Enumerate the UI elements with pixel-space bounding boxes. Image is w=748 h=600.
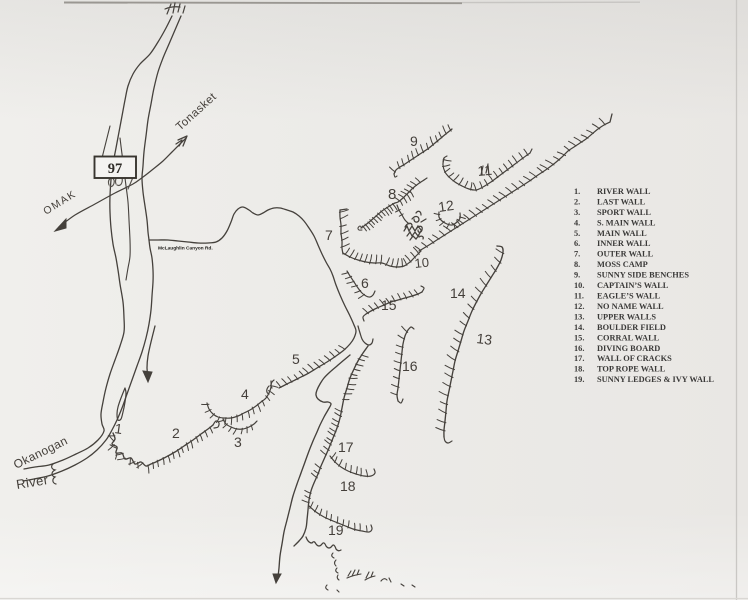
svg-text:9.: 9. bbox=[574, 271, 580, 280]
svg-text:19.: 19. bbox=[574, 375, 584, 384]
svg-text:SUNNY LEDGES & IVY WALL: SUNNY LEDGES & IVY WALL bbox=[597, 375, 714, 384]
svg-text:12: 12 bbox=[437, 197, 455, 215]
svg-text:17.: 17. bbox=[574, 354, 584, 363]
svg-text:BOULDER FIELD: BOULDER FIELD bbox=[597, 323, 666, 332]
svg-text:11: 11 bbox=[477, 162, 493, 179]
svg-text:3.: 3. bbox=[574, 208, 580, 217]
svg-text:5: 5 bbox=[292, 351, 300, 367]
svg-text:CAPTAIN’S WALL: CAPTAIN’S WALL bbox=[597, 281, 669, 290]
svg-text:3: 3 bbox=[234, 434, 242, 450]
svg-text:DIVING BOARD: DIVING BOARD bbox=[597, 344, 660, 353]
svg-text:1.: 1. bbox=[574, 187, 580, 196]
svg-text:15: 15 bbox=[381, 297, 397, 313]
svg-text:8: 8 bbox=[388, 186, 396, 203]
svg-text:4.: 4. bbox=[574, 218, 580, 227]
svg-text:MAIN WALL: MAIN WALL bbox=[597, 229, 647, 238]
svg-text:13: 13 bbox=[476, 330, 494, 348]
svg-text:14: 14 bbox=[450, 285, 466, 301]
svg-text:RIVER WALL: RIVER WALL bbox=[597, 187, 651, 196]
svg-text:14.: 14. bbox=[574, 323, 584, 332]
svg-text:17: 17 bbox=[338, 439, 354, 455]
svg-text:OUTER WALL: OUTER WALL bbox=[597, 250, 654, 259]
svg-text:16: 16 bbox=[402, 358, 418, 374]
svg-text:7: 7 bbox=[325, 227, 333, 243]
svg-text:11.: 11. bbox=[574, 292, 584, 301]
svg-text:McLaughlin Canyon Rd.: McLaughlin Canyon Rd. bbox=[158, 246, 213, 252]
svg-text:7.: 7. bbox=[574, 250, 580, 259]
svg-text:INNER WALL: INNER WALL bbox=[597, 239, 651, 248]
svg-text:6.: 6. bbox=[574, 239, 580, 248]
svg-text:WALL OF CRACKS: WALL OF CRACKS bbox=[597, 354, 672, 363]
svg-text:UPPER WALLS: UPPER WALLS bbox=[597, 312, 656, 321]
svg-text:MOSS CAMP: MOSS CAMP bbox=[597, 260, 648, 269]
svg-text:10.: 10. bbox=[574, 281, 584, 290]
svg-text:18.: 18. bbox=[574, 365, 584, 374]
svg-text:15.: 15. bbox=[574, 333, 584, 342]
svg-text:EAGLE’S WALL: EAGLE’S WALL bbox=[597, 292, 661, 301]
svg-text:5.: 5. bbox=[574, 229, 580, 238]
svg-text:NO NAME WALL: NO NAME WALL bbox=[597, 302, 664, 311]
svg-text:6: 6 bbox=[361, 275, 369, 291]
svg-text:SPORT WALL: SPORT WALL bbox=[597, 208, 651, 217]
svg-text:19: 19 bbox=[328, 522, 344, 538]
svg-text:9: 9 bbox=[410, 133, 418, 149]
svg-text:13.: 13. bbox=[574, 312, 584, 321]
svg-text:LAST WALL: LAST WALL bbox=[597, 197, 646, 206]
svg-text:CORRAL WALL: CORRAL WALL bbox=[597, 333, 660, 342]
svg-text:8.: 8. bbox=[574, 260, 580, 269]
svg-text:12.: 12. bbox=[574, 302, 584, 311]
svg-text:TOP ROPE WALL: TOP ROPE WALL bbox=[597, 365, 666, 374]
svg-text:16.: 16. bbox=[574, 344, 584, 353]
svg-text:2: 2 bbox=[172, 425, 180, 441]
svg-text:S. MAIN WALL: S. MAIN WALL bbox=[597, 218, 656, 227]
svg-text:18: 18 bbox=[340, 478, 356, 494]
svg-text:4: 4 bbox=[241, 386, 249, 402]
svg-text:10: 10 bbox=[414, 255, 430, 271]
svg-text:2.: 2. bbox=[574, 197, 580, 206]
svg-text:SUNNY SIDE BENCHES: SUNNY SIDE BENCHES bbox=[597, 271, 689, 280]
svg-text:97: 97 bbox=[108, 161, 123, 177]
